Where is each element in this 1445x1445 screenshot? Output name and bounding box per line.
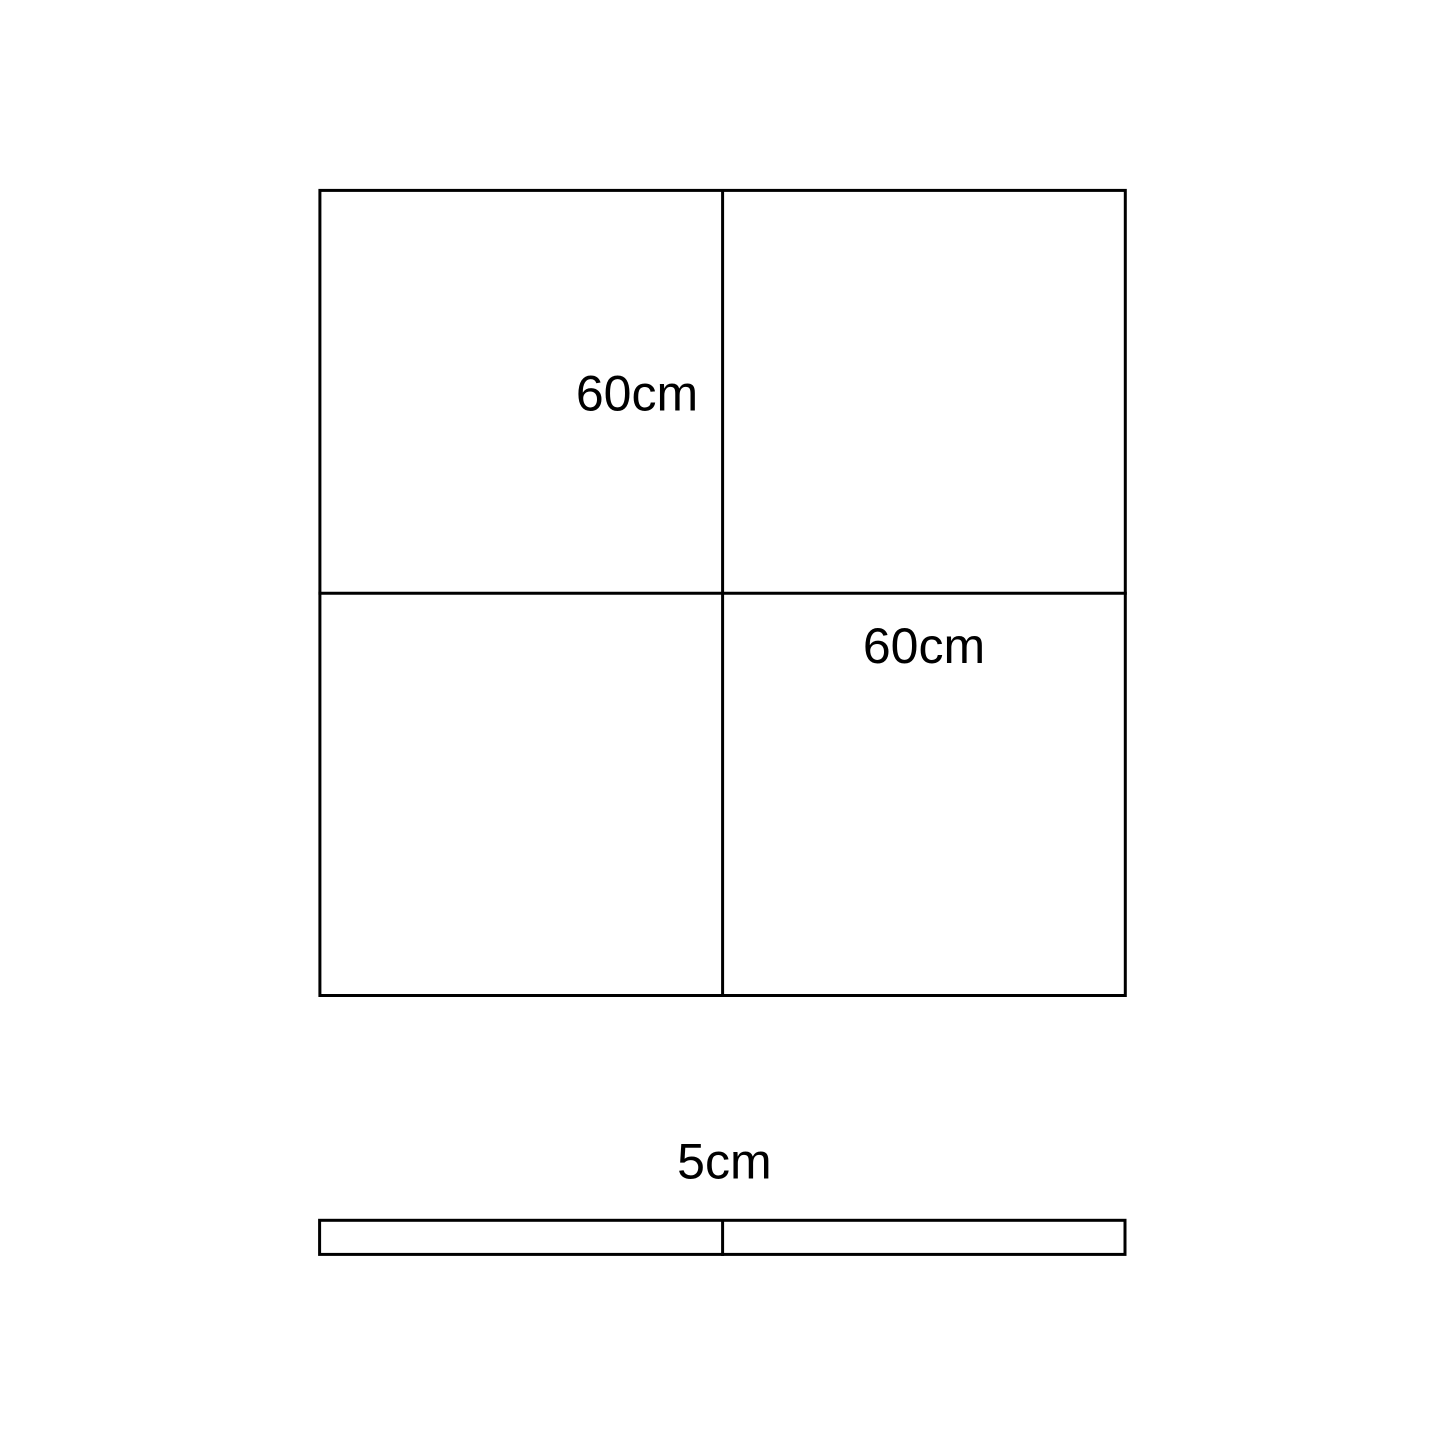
svg-text:60cm: 60cm <box>863 618 985 674</box>
svg-text:60cm: 60cm <box>576 366 698 422</box>
svg-text:5cm: 5cm <box>677 1134 771 1190</box>
